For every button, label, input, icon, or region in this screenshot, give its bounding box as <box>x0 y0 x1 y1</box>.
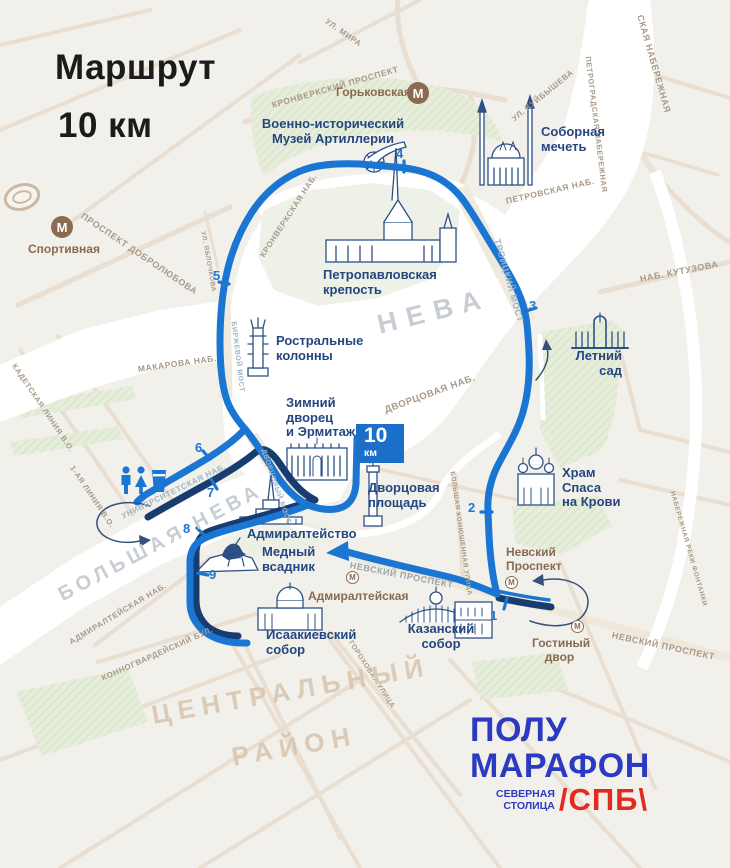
artillery-museum-label: Военно-исторический Музей Артиллерии <box>258 117 408 146</box>
gostiny-dvor-metro-icon: М <box>571 620 584 633</box>
logo-word1: ПОЛУ <box>470 712 680 748</box>
savior-on-blood-label: Храм Спаса на Крови <box>562 466 632 510</box>
street-label-5: ПЕТРОВСКАЯ НАБ. <box>505 176 596 206</box>
sportivnaya-metro-icon: М <box>51 216 73 238</box>
peter-paul-fortress-label: Петропавловская крепость <box>323 268 438 297</box>
logo-word2: МАРАФОН <box>470 748 680 784</box>
admiralty-label: Адмиралтейство <box>247 527 372 542</box>
street-label-12: БИРЖЕВОЙ МОСТ <box>230 321 246 392</box>
nevsky-prospekt-metro-icon: М <box>505 576 518 589</box>
km-marker-8: 8 <box>183 521 190 536</box>
bronze-horseman-label: Медный всадник <box>262 545 332 574</box>
street-label-11: МАКАРОВА НАБ. <box>137 353 217 374</box>
district-line1-label: ЦЕНТРАЛЬНЫЙ <box>149 651 432 730</box>
label-overlay: Маршрут 10 км 10 км ПОЛУ МАРАФОН СЕВЕРНА… <box>0 0 730 868</box>
street-label-16: ДВОРЦОВАЯ НАБ. <box>383 373 477 416</box>
km-marker-6: 6 <box>195 440 202 455</box>
street-label-13: КАДЕТСКАЯ ЛИНИЯ В.О. <box>10 362 76 454</box>
sportivnaya-metro-label: Спортивная <box>28 243 98 257</box>
admiralteyskaya-metro-label: Адмиралтейская <box>308 590 403 604</box>
street-label-21: НЕВСКИЙ ПРОСПЕКТ <box>611 630 716 662</box>
km-marker-3: 3 <box>529 298 536 313</box>
street-label-9: ТРОИЦКИЙ МОСТ <box>492 238 525 324</box>
street-label-17: ДВОРЦОВЫЙ МОСТ <box>260 448 292 524</box>
kazan-cathedral-label: Казанский собор <box>404 622 478 651</box>
km-marker-4: 4 <box>396 146 403 161</box>
street-label-7: УЛ. ЯБЛОЧКОВА <box>200 231 218 293</box>
cathedral-mosque-label: Соборная мечеть <box>541 125 621 154</box>
winter-palace-label: Зимний дворец и Эрмитаж <box>286 396 371 440</box>
rostral-columns-label: Ростральные колонны <box>276 334 371 363</box>
map-title-line1: Маршрут <box>55 48 216 88</box>
km-marker-7: 7 <box>207 485 214 500</box>
street-label-0: УЛ. МИРА <box>323 17 363 49</box>
summer-garden-label: Летний сад <box>558 349 622 378</box>
st-isaacs-cathedral-label: Исаакиевский собор <box>266 628 366 657</box>
nevsky-prospekt-metro-label: Невский Проспект <box>506 546 566 574</box>
map-title-line2: 10 км <box>58 106 153 146</box>
km-marker-2: 2 <box>468 500 475 515</box>
km-marker-9: 9 <box>209 567 216 582</box>
street-label-8: КРОНВЕРКСКАЯ НАБ. <box>258 172 319 259</box>
gorkovskaya-metro-label: Горьковская <box>336 86 404 100</box>
street-label-22: НАБЕРЕЖНАЯ РЕКИ ФОНТАНКИ <box>669 491 709 608</box>
street-label-4: УЛ. КУЙБЫШЕВА <box>510 68 575 123</box>
route-map: Маршрут 10 км 10 км ПОЛУ МАРАФОН СЕВЕРНА… <box>0 0 730 868</box>
street-label-23: КОННОГВАРДЕЙСКИЙ БУЛ. <box>100 625 214 683</box>
logo-spb-tag: /СПБ\ <box>559 784 648 815</box>
street-label-14: 1-АЯ ЛИНИЯ В.О. <box>68 464 116 529</box>
district-line2-label: РАЙОН <box>229 720 359 773</box>
km-marker-1: 1 <box>490 608 497 623</box>
street-label-10: НАБ. КУТУЗОВА <box>639 259 719 284</box>
logo-subtitle: СЕВЕРНАЯ СТОЛИЦА <box>496 789 555 812</box>
event-logo: ПОЛУ МАРАФОН СЕВЕРНАЯ СТОЛИЦА /СПБ\ <box>470 712 680 815</box>
gostiny-dvor-metro-label: Гостиный двор <box>532 637 587 665</box>
km-marker-5: 5 <box>213 268 220 283</box>
admiralteyskaya-metro-icon: М <box>346 571 359 584</box>
street-label-19: НЕВСКИЙ ПРОСПЕКТ <box>349 560 454 590</box>
street-label-2: СКАЯ НАБЕРЕЖНАЯ <box>635 14 673 114</box>
palace-square-label: Дворцовая площадь <box>368 481 453 510</box>
badge-unit: км <box>364 448 404 459</box>
